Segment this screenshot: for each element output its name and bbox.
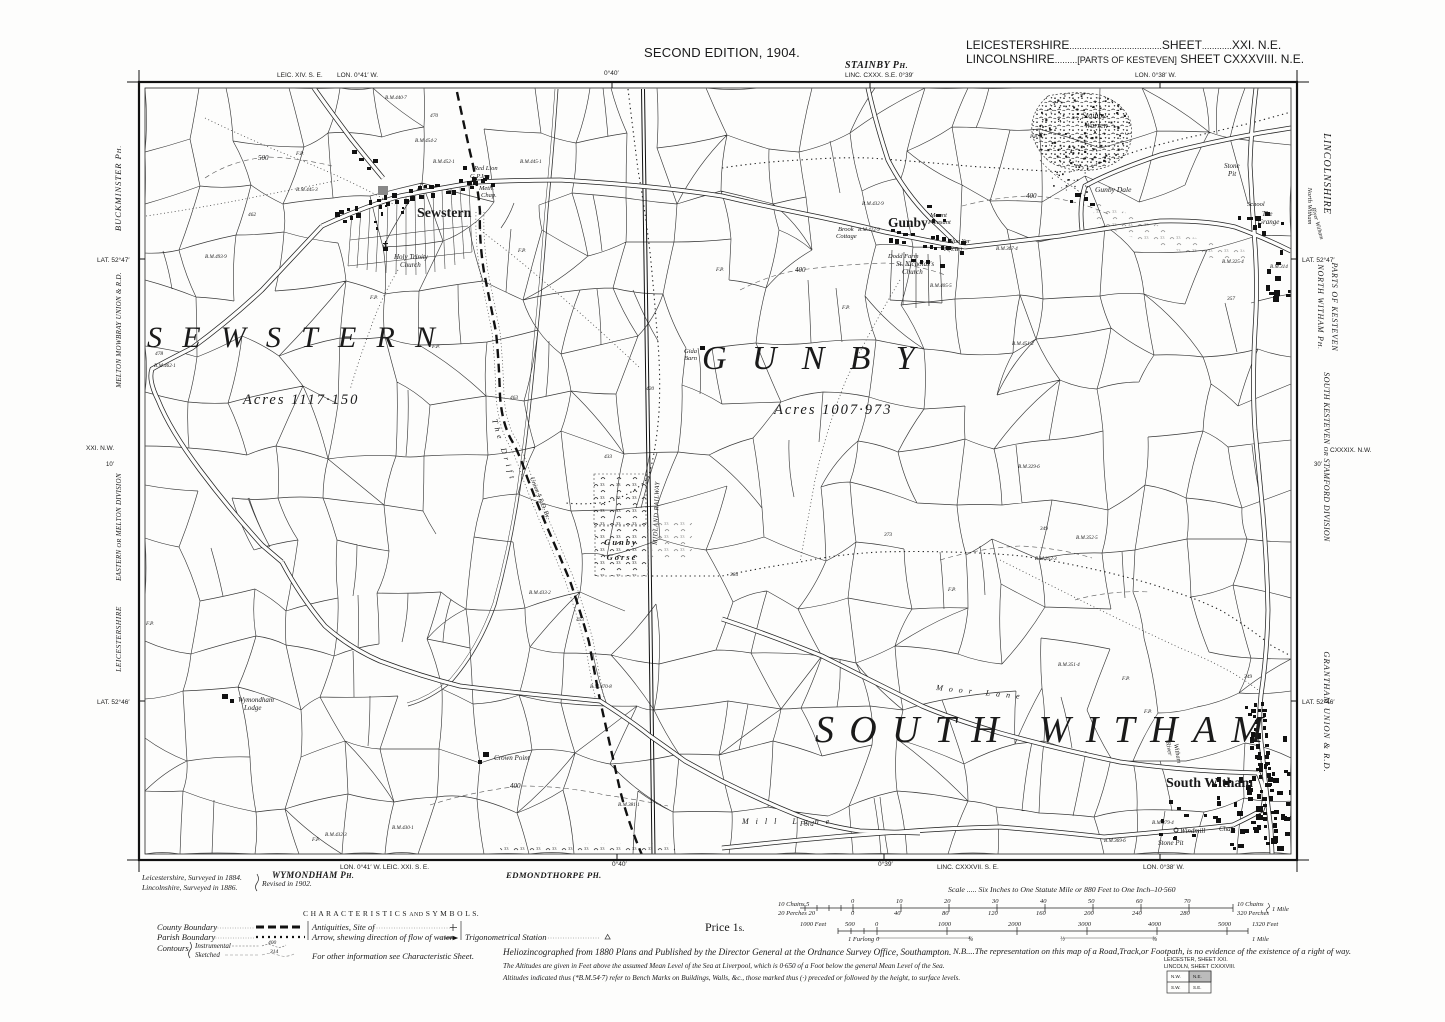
svg-text:314: 314: [269, 948, 279, 955]
svg-text:MELTON MOWBRAY UNION & R.D.: MELTON MOWBRAY UNION & R.D.: [115, 272, 123, 389]
svg-text:Meth.: Meth.: [478, 185, 494, 192]
svg-text:F.P.: F.P.: [369, 295, 378, 301]
svg-text:LEICESTERSHIRE: LEICESTERSHIRE: [114, 606, 123, 673]
svg-text:LON. 0°38′ W.: LON. 0°38′ W.: [1135, 71, 1176, 79]
svg-text:B.M.432·3: B.M.432·3: [325, 831, 347, 838]
svg-text:B.M.451·2: B.M.451·2: [1012, 340, 1034, 347]
svg-text:South Witham: South Witham: [1166, 776, 1253, 791]
svg-text:Church: Church: [902, 268, 923, 276]
svg-text:B.M.351·4: B.M.351·4: [1058, 661, 1080, 668]
svg-text:160: 160: [1036, 910, 1047, 917]
svg-text:F.P.: F.P.: [715, 267, 724, 273]
svg-text:349: 349: [1243, 674, 1252, 680]
svg-text:B.M.454·2: B.M.454·2: [415, 137, 437, 144]
svg-text:240: 240: [1132, 910, 1143, 917]
svg-text:10′: 10′: [106, 462, 115, 468]
svg-text:Arrow, shewing direction of fl: Arrow, shewing direction of flow of wate…: [311, 932, 454, 942]
svg-text:B.M.452·1: B.M.452·1: [433, 158, 455, 165]
svg-text:LINCOLNSHIRE: LINCOLNSHIRE: [1321, 132, 1332, 214]
svg-text:5000: 5000: [1218, 921, 1232, 928]
svg-text:320 Perches: 320 Perches: [1236, 910, 1270, 917]
svg-text:Stone: Stone: [1224, 162, 1240, 170]
svg-text:433: 433: [604, 454, 612, 460]
svg-text:500: 500: [845, 921, 856, 928]
svg-text:373: 373: [883, 532, 892, 538]
svg-text:BUCKMINSTER PH.: BUCKMINSTER PH.: [113, 145, 123, 231]
svg-text:F.P.: F.P.: [311, 837, 320, 843]
svg-text:30: 30: [991, 898, 999, 905]
svg-text:Barn: Barn: [684, 355, 697, 362]
svg-text:B.M.430·1: B.M.430·1: [392, 824, 414, 831]
svg-text:B.M.440·7: B.M.440·7: [385, 94, 407, 101]
svg-text:Scale ..... Six Inches to One: Scale ..... Six Inches to One Statute Mi…: [948, 885, 1176, 894]
svg-text:Church: Church: [400, 261, 421, 269]
svg-text:LAT. 52°46′: LAT. 52°46′: [97, 698, 130, 706]
svg-text:453: 453: [576, 617, 584, 623]
svg-text:1 Furlong: 1 Furlong: [848, 936, 875, 943]
svg-text:B.M.432·9: B.M.432·9: [862, 200, 884, 207]
svg-text:G.P.Inn: G.P.Inn: [470, 173, 490, 180]
svg-text:120: 120: [988, 910, 999, 917]
svg-text:North Witham: North Witham: [1306, 187, 1313, 225]
svg-text:Dodd Farm: Dodd Farm: [887, 253, 919, 260]
svg-text:Chap.: Chap.: [481, 192, 497, 199]
svg-text:F.P.: F.P.: [295, 151, 304, 157]
svg-text:Stainby: Stainby: [1082, 111, 1106, 120]
svg-text:478: 478: [155, 351, 163, 357]
svg-text:500: 500: [258, 154, 269, 162]
svg-text:LON. 0°41′ W.: LON. 0°41′ W.: [337, 71, 378, 79]
svg-text:B.M.422·9: B.M.422·9: [858, 226, 880, 233]
svg-text:Instrumental: Instrumental: [194, 942, 231, 950]
svg-text:EDMONDTHORPE PH.: EDMONDTHORPE PH.: [505, 870, 601, 880]
svg-text:CXXXIX. N.W.: CXXXIX. N.W.: [1330, 447, 1372, 454]
svg-text:N.W.: N.W.: [1171, 974, 1181, 979]
svg-text:F.P.: F.P.: [1121, 676, 1130, 682]
svg-text:3000: 3000: [1077, 921, 1092, 928]
svg-text:B.M.470·8: B.M.470·8: [590, 683, 612, 690]
svg-text:Acres 1117·150: Acres 1117·150: [242, 392, 359, 408]
svg-text:1 Mile: 1 Mile: [1272, 906, 1289, 913]
svg-text:Chap.: Chap.: [1219, 825, 1236, 833]
svg-text:384: 384: [729, 572, 738, 578]
svg-text:B.M.367·4: B.M.367·4: [996, 245, 1018, 252]
svg-text:The Altitudes are given in Fee: The Altitudes are given in Feet above th…: [503, 962, 945, 970]
svg-text:F.P.: F.P.: [431, 344, 440, 350]
svg-text:The: The: [1262, 210, 1273, 218]
svg-text:EASTERN OR MELTON DIVISION: EASTERN OR MELTON DIVISION: [115, 473, 123, 582]
svg-text:1320 Feet: 1320 Feet: [1252, 921, 1278, 928]
svg-text:B.M.314: B.M.314: [1270, 263, 1288, 270]
svg-text:Cottage: Cottage: [836, 233, 857, 240]
svg-text:Blue Yar: Blue Yar: [948, 238, 971, 245]
svg-text:B.M.329·6: B.M.329·6: [1018, 464, 1040, 470]
svg-text:Wymondham: Wymondham: [238, 696, 274, 704]
svg-text:10: 10: [896, 898, 903, 905]
svg-text:20 Perches 20: 20 Perches 20: [778, 910, 816, 917]
svg-text:B.M.493·9: B.M.493·9: [205, 253, 227, 260]
svg-text:Sketched: Sketched: [195, 951, 220, 959]
svg-text:Sewstern: Sewstern: [417, 206, 472, 221]
svg-text:40: 40: [1040, 898, 1047, 905]
svg-text:Gida: Gida: [684, 348, 697, 355]
svg-text:XXI. N.W.: XXI. N.W.: [86, 445, 114, 452]
svg-text:F.P.: F.P.: [1029, 134, 1038, 140]
svg-text:200: 200: [1084, 910, 1095, 917]
svg-text:Parish Boundary: Parish Boundary: [156, 932, 216, 942]
svg-text:70: 70: [1184, 898, 1191, 905]
svg-text:N.E.: N.E.: [1193, 974, 1202, 979]
svg-text:Windmill: Windmill: [1180, 827, 1205, 835]
svg-text:¼: ¼: [968, 936, 973, 943]
svg-text:400: 400: [510, 782, 521, 790]
svg-text:400: 400: [795, 266, 806, 274]
svg-text:60: 60: [1136, 898, 1143, 905]
svg-text:P.(Y.B.): P.(Y.B.): [943, 246, 962, 253]
svg-text:400: 400: [1026, 192, 1037, 200]
svg-text:20: 20: [944, 898, 951, 905]
svg-text:N.B....The representation on t: N.B....The representation on this map of…: [952, 946, 1351, 956]
svg-text:Heliozincographed from 1880: Heliozincographed from 1880 Plans and Pu…: [502, 947, 951, 957]
svg-text:Pit: Pit: [1227, 170, 1237, 178]
svg-text:Antiquities, Site of: Antiquities, Site of: [311, 922, 376, 932]
svg-text:LINCOLN, SHEET CXXXVIII.: LINCOLN, SHEET CXXXVIII.: [1164, 964, 1236, 970]
svg-text:B.M.379·4: B.M.379·4: [1152, 819, 1174, 826]
svg-text:B.M.352·3: B.M.352·3: [1035, 556, 1057, 562]
svg-text:B.M.433·2: B.M.433·2: [529, 589, 551, 596]
svg-text:LINC. CXXXVII. S. E.: LINC. CXXXVII. S. E.: [937, 864, 999, 871]
svg-text:Pleasant: Pleasant: [927, 219, 951, 226]
svg-text:Gunby Dale: Gunby Dale: [1095, 185, 1132, 194]
svg-text:0°39′: 0°39′: [878, 860, 893, 868]
svg-text:Warren: Warren: [1084, 121, 1107, 130]
svg-text:463: 463: [510, 395, 518, 401]
svg-text:462: 462: [248, 212, 256, 218]
svg-text:0°40′: 0°40′: [612, 860, 627, 868]
svg-text:Holy Trinity: Holy Trinity: [393, 253, 429, 261]
svg-text:Revised in 1902.: Revised in 1902.: [261, 879, 312, 888]
svg-text:S.W.: S.W.: [1171, 985, 1181, 990]
svg-text:Lincolnshire, Surveyed in: Lincolnshire, Surveyed in 1886.: [141, 883, 237, 892]
svg-text:4000: 4000: [1148, 921, 1162, 928]
svg-text:S.E.: S.E.: [1193, 985, 1202, 990]
svg-text:357: 357: [1226, 296, 1235, 302]
svg-text:Grange: Grange: [1258, 218, 1279, 226]
svg-text:B.M.445·1: B.M.445·1: [520, 158, 542, 165]
svg-text:1 Mile: 1 Mile: [1252, 936, 1269, 943]
svg-text:SECOND EDITION, 1904.: SECOND EDITION, 1904.: [644, 45, 800, 60]
svg-text:NORTH WITHAM PH.: NORTH WITHAM PH.: [1316, 263, 1325, 349]
svg-text:School: School: [1247, 201, 1265, 208]
svg-text:½: ½: [1060, 936, 1065, 943]
svg-text:For other information see Char: For other information see Characteristic…: [311, 951, 474, 961]
svg-text:470: 470: [430, 113, 438, 119]
svg-text:Contours: Contours: [157, 943, 189, 953]
svg-text:LEICESTERSHIRE................: LEICESTERSHIRE..........................…: [966, 38, 1281, 52]
svg-text:10 Chains 5: 10 Chains 5: [778, 901, 810, 908]
svg-text:420: 420: [646, 386, 654, 392]
svg-text:STAINBY PH.: STAINBY PH.: [845, 60, 908, 71]
svg-text:F.P.: F.P.: [517, 248, 526, 254]
svg-text:GRANTHAM UNION & R.D.: GRANTHAM UNION & R.D.: [1322, 651, 1332, 772]
svg-text:400: 400: [268, 939, 277, 946]
svg-text:LINCOLNSHIRE.........[PARTS OF: LINCOLNSHIRE.........[PARTS OF KESTEVEN]…: [966, 52, 1304, 66]
svg-text:2000: 2000: [1008, 921, 1022, 928]
svg-text:SOUTH KESTEVEN OR STAMFORD DIV: SOUTH KESTEVEN OR STAMFORD DIVISION: [1322, 372, 1331, 542]
svg-text:F.P.: F.P.: [947, 587, 956, 593]
svg-text:F.P.: F.P.: [841, 305, 850, 311]
svg-text:B.M.462·1: B.M.462·1: [154, 362, 176, 369]
svg-text:0°40′: 0°40′: [604, 69, 619, 77]
svg-text:LEIC. XIV. S. E.: LEIC. XIV. S. E.: [277, 72, 323, 79]
svg-text:Gorse: Gorse: [607, 552, 638, 562]
svg-text:1000 Feet: 1000 Feet: [800, 921, 826, 928]
svg-text:Leicestershire, Surveyed in: Leicestershire, Surveyed in 1884.: [141, 873, 242, 882]
svg-text:Brook: Brook: [838, 226, 854, 233]
svg-text:PARTS OF KESTEVEN: PARTS OF KESTEVEN: [1330, 261, 1339, 351]
svg-text:County Boundary: County Boundary: [157, 922, 217, 932]
svg-text:B.M.405·5: B.M.405·5: [930, 282, 952, 289]
svg-text:40: 40: [894, 910, 901, 917]
svg-text:Stone Pit: Stone Pit: [1158, 839, 1185, 847]
svg-text:Crown Point: Crown Point: [494, 754, 531, 762]
svg-text:B.M.369·6: B.M.369·6: [1104, 838, 1126, 844]
svg-text:¾: ¾: [1152, 936, 1157, 943]
svg-text:50: 50: [1088, 898, 1095, 905]
svg-text:LINC. CXXX. S.E. 0°39′: LINC. CXXX. S.E. 0°39′: [845, 71, 914, 79]
svg-text:LEICESTER, SHEET XXI.: LEICESTER, SHEET XXI.: [1164, 957, 1228, 963]
svg-text:Gunby: Gunby: [888, 215, 928, 230]
svg-text:280: 280: [1180, 910, 1191, 917]
svg-text:80: 80: [942, 910, 949, 917]
svg-text:Red Lion: Red Lion: [473, 165, 498, 172]
svg-text:Trigonometrical Station: Trigonometrical Station: [465, 932, 546, 942]
svg-text:SOUTH WITHAM: SOUTH WITHAM: [815, 709, 1278, 751]
svg-text:Mount: Mount: [929, 212, 947, 219]
svg-text:GUNBY: GUNBY: [702, 340, 940, 377]
svg-text:B.M.381·1: B.M.381·1: [618, 802, 640, 808]
svg-text:B.M.325·4: B.M.325·4: [1222, 258, 1244, 265]
svg-text:1000: 1000: [938, 921, 952, 928]
svg-text:LON. 0°38′ W.: LON. 0°38′ W.: [1143, 863, 1184, 871]
svg-text:10 Chains: 10 Chains: [1237, 901, 1264, 908]
svg-text:F.P.: F.P.: [1143, 709, 1152, 715]
svg-text:LAT. 52°46′: LAT. 52°46′: [1302, 698, 1335, 706]
svg-text:C H A R A C T E R I S T I C S: C H A R A C T E R I S T I C S AND S Y M …: [303, 909, 479, 918]
svg-text:SEWSTERN: SEWSTERN: [147, 321, 455, 354]
svg-text:LON. 0°41′ W. LEIC. XXI. S.: LON. 0°41′ W. LEIC. XXI. S. E.: [340, 863, 429, 871]
svg-text:349: 349: [1040, 525, 1048, 532]
svg-text:B.M.445·3: B.M.445·3: [296, 186, 318, 193]
svg-text:Gunby: Gunby: [604, 537, 638, 547]
svg-text:B.M.352·5: B.M.352·5: [1076, 535, 1098, 541]
svg-text:Price 1s.: Price 1s.: [705, 920, 744, 934]
svg-text:Acres 1007·973: Acres 1007·973: [773, 402, 892, 418]
svg-text:LAT. 52°47′: LAT. 52°47′: [97, 256, 130, 264]
svg-text:Altitudes indicated thus (*B.M: Altitudes indicated thus (*B.M.54·7) ref…: [502, 974, 960, 982]
svg-text:Lodge: Lodge: [243, 704, 262, 712]
svg-text:F.P.: F.P.: [145, 621, 154, 627]
svg-text:St. Nicholas's: St. Nicholas's: [896, 260, 934, 268]
svg-text:Mill Lane: Mill Lane: [741, 817, 836, 826]
svg-text:30′: 30′: [1314, 462, 1323, 468]
